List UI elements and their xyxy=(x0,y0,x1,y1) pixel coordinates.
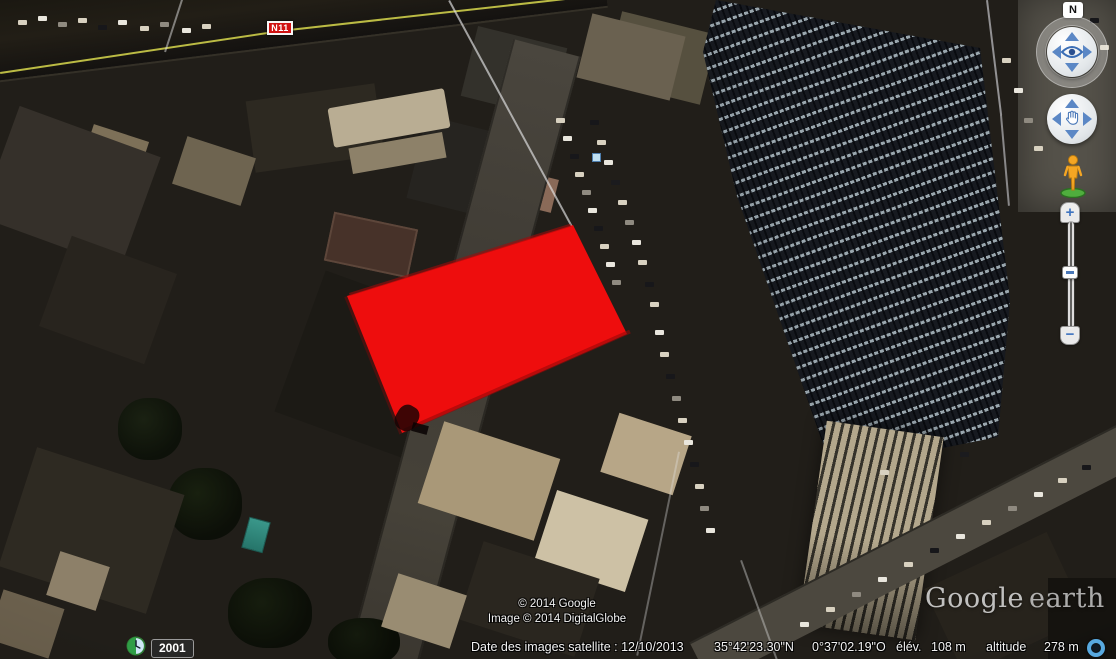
altitude-label: altitude xyxy=(986,640,1026,654)
altitude-value: 278 m xyxy=(1044,640,1079,654)
chevron-up-icon[interactable] xyxy=(1065,32,1079,41)
chevron-right-icon[interactable] xyxy=(1083,112,1092,126)
time-slider-control[interactable]: 2001 xyxy=(126,636,194,659)
zoom-out-button[interactable]: − xyxy=(1060,326,1080,345)
chevron-down-icon[interactable] xyxy=(1065,63,1079,72)
compass-north-button[interactable]: N xyxy=(1063,2,1083,18)
zoom-in-button[interactable]: + xyxy=(1060,202,1080,223)
chevron-up-icon[interactable] xyxy=(1065,99,1079,108)
move-joystick[interactable] xyxy=(1047,94,1097,144)
photo-marker-icon[interactable] xyxy=(592,153,601,162)
chevron-left-icon[interactable] xyxy=(1052,112,1061,126)
latitude-value: 35°42'23.30"N xyxy=(714,640,794,654)
clock-icon[interactable] xyxy=(126,636,146,659)
imagery-date-label: Date des images satellite : 12/10/2013 xyxy=(471,640,684,654)
streaming-indicator-icon xyxy=(1087,639,1105,657)
chevron-right-icon[interactable] xyxy=(1083,45,1092,59)
road-badge-n11: N11 xyxy=(267,21,293,35)
copyright-line: © 2014 Google xyxy=(432,597,682,612)
pegman-street-view[interactable] xyxy=(1057,152,1089,198)
zoom-slider-handle[interactable] xyxy=(1062,266,1078,279)
elevation-value: 108 m xyxy=(931,640,966,654)
elevation-label: élév. xyxy=(896,640,921,654)
hand-icon xyxy=(1063,109,1081,132)
copyright-line: Image © 2014 DigitalGlobe xyxy=(432,612,682,627)
look-joystick[interactable] xyxy=(1047,27,1097,77)
logo-product: earth xyxy=(1029,583,1105,614)
google-earth-logo: Googleearth xyxy=(925,583,1105,614)
time-year-badge[interactable]: 2001 xyxy=(151,639,194,658)
longitude-value: 0°37'02.19"O xyxy=(812,640,886,654)
copyright-watermark: © 2014 Google Image © 2014 DigitalGlobe xyxy=(432,597,682,627)
logo-brand: Google xyxy=(925,583,1024,614)
eye-icon xyxy=(1060,45,1084,64)
google-earth-viewport: N11 N + − xyxy=(0,0,1116,659)
